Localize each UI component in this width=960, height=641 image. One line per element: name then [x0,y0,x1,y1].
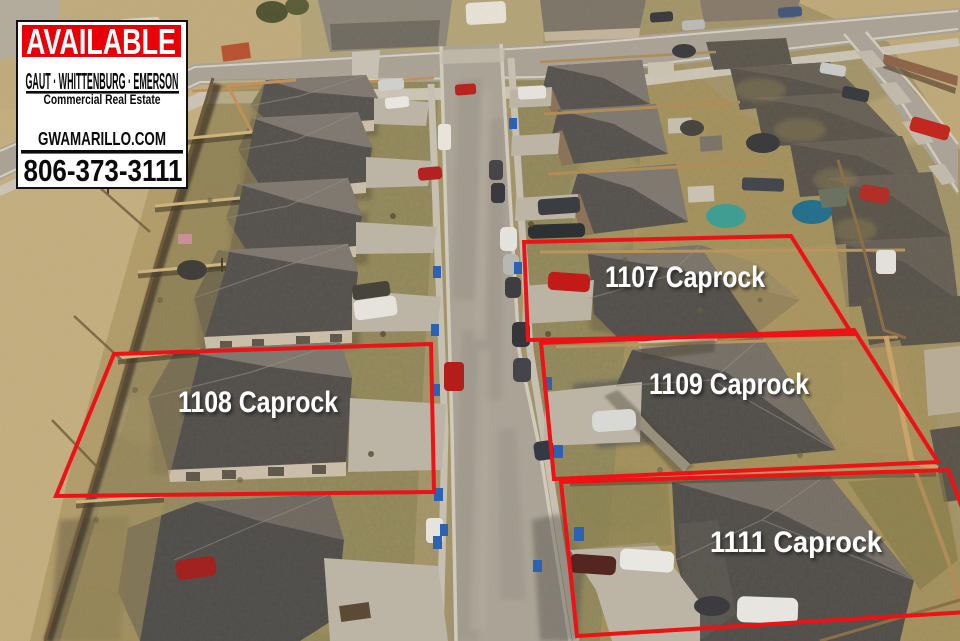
svg-text:GWAMARILLO.COM: GWAMARILLO.COM [38,129,166,149]
svg-text:1111 Caprock: 1111 Caprock [710,526,882,559]
svg-text:AVAILABLE: AVAILABLE [26,21,176,62]
svg-text:GAUT · WHITTENBURG · EMERSON: GAUT · WHITTENBURG · EMERSON [26,68,179,94]
svg-text:1107 Caprock: 1107 Caprock [605,261,765,294]
svg-text:1109 Caprock: 1109 Caprock [649,368,809,401]
svg-text:806-373-3111: 806-373-3111 [24,153,183,188]
svg-text:1108 Caprock: 1108 Caprock [178,386,338,419]
svg-text:Commercial Real Estate: Commercial Real Estate [44,92,161,107]
